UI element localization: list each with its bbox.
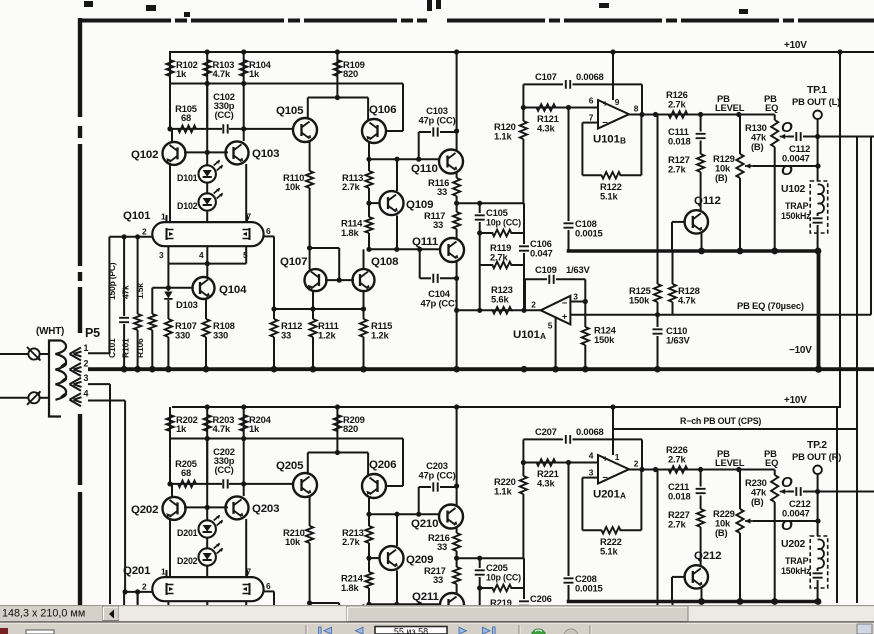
svg-text:5.1k: 5.1k — [600, 191, 618, 202]
svg-text:6: 6 — [266, 581, 271, 591]
svg-text:33: 33 — [433, 219, 443, 230]
svg-text:2.7k: 2.7k — [490, 252, 508, 263]
svg-text:EQ: EQ — [765, 457, 778, 468]
svg-text:1k: 1k — [176, 423, 187, 434]
svg-text:−10V: −10V — [789, 345, 812, 356]
svg-text:5.6k: 5.6k — [491, 294, 509, 305]
svg-text:Q206: Q206 — [369, 459, 396, 471]
svg-text:U202: U202 — [781, 539, 806, 550]
svg-text:0.0047: 0.0047 — [782, 508, 810, 519]
svg-text:2: 2 — [84, 358, 89, 368]
svg-text:4.7k: 4.7k — [213, 68, 231, 79]
svg-text:TP.2: TP.2 — [807, 440, 827, 451]
svg-text:150k: 150k — [629, 295, 650, 306]
svg-text:U201: U201 — [593, 489, 620, 501]
svg-text:820: 820 — [343, 68, 358, 79]
svg-text:6: 6 — [266, 226, 271, 236]
svg-text:D101: D101 — [177, 173, 198, 183]
svg-text:0.0068: 0.0068 — [576, 426, 604, 437]
svg-text:O: O — [781, 119, 793, 136]
svg-text:330: 330 — [213, 330, 228, 341]
svg-text:0.018: 0.018 — [668, 136, 691, 147]
svg-text:0.0047: 0.0047 — [782, 153, 810, 164]
svg-text:2: 2 — [142, 582, 147, 592]
svg-text:7: 7 — [247, 212, 252, 222]
svg-text:33: 33 — [433, 574, 443, 585]
svg-text:150k: 150k — [594, 334, 615, 345]
svg-text:820: 820 — [343, 423, 358, 434]
svg-text:B: B — [620, 136, 626, 146]
svg-text:1.2k: 1.2k — [318, 330, 336, 341]
svg-text:150kHz: 150kHz — [781, 211, 811, 221]
svg-text:U102: U102 — [781, 184, 806, 195]
svg-text:D103: D103 — [176, 299, 198, 310]
svg-text:U101: U101 — [593, 134, 620, 146]
svg-text:0.0068: 0.0068 — [576, 71, 604, 82]
svg-text:(WHT): (WHT) — [36, 326, 64, 337]
svg-text:150kHz: 150kHz — [781, 566, 811, 576]
svg-text:4: 4 — [84, 389, 89, 399]
svg-text:Q202: Q202 — [131, 504, 158, 516]
svg-text:4: 4 — [199, 250, 204, 260]
svg-text:Q205: Q205 — [276, 460, 304, 472]
svg-text:+: + — [603, 99, 608, 109]
svg-text:10p (CC): 10p (CC) — [486, 218, 521, 228]
svg-text:PB EQ (70µsec): PB EQ (70µsec) — [737, 300, 804, 311]
svg-text:R101: R101 — [121, 338, 131, 358]
svg-text:(CC): (CC) — [214, 109, 233, 120]
svg-text:Q110: Q110 — [411, 163, 438, 175]
svg-text:+: + — [562, 311, 568, 322]
svg-text:10p (CC): 10p (CC) — [486, 573, 521, 583]
svg-text:4.3k: 4.3k — [537, 478, 555, 489]
svg-text:2.7k: 2.7k — [668, 519, 686, 530]
svg-text:(B): (B) — [715, 172, 728, 183]
svg-text:+10V: +10V — [784, 395, 807, 406]
svg-text:3: 3 — [159, 250, 164, 260]
svg-text:O: O — [781, 474, 793, 491]
svg-text:5.1k: 5.1k — [600, 546, 618, 557]
svg-text:Q108: Q108 — [371, 256, 399, 268]
svg-text:47p (CC): 47p (CC) — [418, 470, 455, 481]
svg-text:10k: 10k — [285, 536, 301, 547]
svg-text:A: A — [620, 491, 626, 501]
svg-text:2.7k: 2.7k — [342, 536, 360, 547]
svg-text:(CC): (CC) — [214, 464, 233, 475]
svg-text:+: + — [603, 454, 608, 464]
svg-text:P5: P5 — [85, 326, 100, 340]
svg-text:1k: 1k — [249, 423, 260, 434]
svg-text:2: 2 — [142, 227, 147, 237]
svg-text:0.0015: 0.0015 — [575, 228, 603, 239]
svg-text:C207: C207 — [535, 426, 557, 437]
svg-text:C205: C205 — [486, 562, 508, 573]
svg-text:O: O — [781, 517, 793, 534]
svg-text:(B): (B) — [751, 496, 764, 507]
svg-text:0.0015: 0.0015 — [575, 583, 603, 594]
svg-text:PB OUT (L): PB OUT (L) — [792, 96, 840, 107]
svg-text:PB OUT (R): PB OUT (R) — [792, 451, 841, 462]
svg-text:68: 68 — [181, 467, 191, 478]
svg-text:1: 1 — [161, 567, 166, 577]
svg-text:10k: 10k — [285, 181, 301, 192]
svg-text:Q104: Q104 — [219, 284, 247, 296]
svg-text:4.7k: 4.7k — [678, 295, 696, 306]
svg-text:Q111: Q111 — [412, 236, 439, 248]
svg-text:0.018: 0.018 — [668, 491, 691, 502]
svg-text:C105: C105 — [486, 207, 508, 218]
svg-text:Q212: Q212 — [694, 550, 721, 562]
svg-text:9: 9 — [615, 97, 620, 107]
svg-text:2.7k: 2.7k — [668, 454, 686, 465]
svg-text:Q106: Q106 — [369, 104, 396, 116]
svg-text:O: O — [781, 162, 793, 179]
svg-text:TRAP: TRAP — [785, 556, 809, 566]
svg-text:Q105: Q105 — [276, 105, 304, 117]
svg-text:R106: R106 — [135, 338, 145, 358]
svg-text:+10V: +10V — [784, 40, 807, 51]
svg-text:1.1k: 1.1k — [494, 486, 512, 497]
svg-text:1: 1 — [84, 343, 89, 353]
svg-text:6: 6 — [589, 96, 594, 106]
svg-text:1k: 1k — [176, 68, 187, 79]
svg-text:LEVEL: LEVEL — [715, 102, 745, 113]
svg-text:−: − — [562, 297, 568, 308]
svg-text:1k: 1k — [249, 68, 260, 79]
svg-text:TP.1: TP.1 — [807, 85, 827, 96]
svg-text:47p (CC): 47p (CC) — [420, 298, 457, 309]
svg-text:7: 7 — [589, 113, 594, 123]
svg-text:33: 33 — [437, 186, 447, 197]
svg-text:3: 3 — [589, 468, 594, 478]
svg-text:A: A — [540, 331, 546, 341]
svg-text:Q103: Q103 — [252, 148, 279, 160]
svg-text:33: 33 — [437, 541, 447, 552]
svg-text:1: 1 — [615, 452, 620, 462]
svg-text:(B): (B) — [715, 527, 728, 538]
svg-text:−: − — [602, 117, 608, 128]
svg-text:Q201: Q201 — [123, 565, 151, 577]
svg-text:33: 33 — [281, 330, 291, 341]
svg-text:1/63V: 1/63V — [566, 264, 590, 275]
svg-text:Q107: Q107 — [280, 256, 307, 268]
svg-text:D102: D102 — [177, 201, 198, 211]
svg-text:55 из 58: 55 из 58 — [394, 627, 428, 634]
svg-text:3: 3 — [84, 373, 89, 383]
svg-text:2: 2 — [634, 459, 639, 469]
svg-text:4: 4 — [589, 451, 594, 461]
svg-text:2.7k: 2.7k — [342, 181, 360, 192]
svg-text:4.3k: 4.3k — [537, 123, 555, 134]
svg-text:EQ: EQ — [765, 102, 778, 113]
svg-text:−: − — [602, 472, 608, 483]
svg-text:Q112: Q112 — [694, 195, 721, 207]
svg-text:Q211: Q211 — [412, 591, 439, 603]
svg-text:5: 5 — [548, 321, 553, 331]
svg-text:47p (CC): 47p (CC) — [418, 115, 455, 126]
svg-text:1/63V: 1/63V — [666, 335, 690, 346]
svg-text:47k: 47k — [121, 285, 131, 299]
svg-text:R−ch PB OUT (CPS): R−ch PB OUT (CPS) — [680, 416, 761, 426]
svg-text:D201: D201 — [177, 528, 198, 538]
svg-text:2.7k: 2.7k — [668, 99, 686, 110]
svg-text:150p (PC): 150p (PC) — [107, 262, 117, 300]
svg-text:TRAP: TRAP — [785, 201, 809, 211]
svg-text:Q210: Q210 — [411, 518, 438, 530]
svg-text:(B): (B) — [751, 141, 764, 152]
svg-text:2: 2 — [531, 300, 536, 310]
svg-text:1.2k: 1.2k — [371, 330, 389, 341]
svg-text:C101: C101 — [107, 338, 117, 358]
svg-text:330: 330 — [175, 330, 190, 341]
svg-text:Q101: Q101 — [123, 210, 151, 222]
svg-text:68: 68 — [181, 112, 191, 123]
svg-text:Q102: Q102 — [131, 149, 158, 161]
svg-text:C107: C107 — [535, 71, 557, 82]
svg-text:D202: D202 — [177, 556, 198, 566]
svg-text:Q203: Q203 — [252, 503, 279, 515]
svg-text:1.8k: 1.8k — [341, 227, 359, 238]
svg-text:1.1k: 1.1k — [494, 131, 512, 142]
svg-text:4.7k: 4.7k — [213, 423, 231, 434]
svg-text:LEVEL: LEVEL — [715, 457, 745, 468]
svg-text:U101: U101 — [513, 329, 540, 341]
svg-text:7: 7 — [247, 567, 252, 577]
svg-text:1: 1 — [161, 212, 166, 222]
svg-text:8: 8 — [634, 104, 639, 114]
svg-text:C109: C109 — [535, 264, 557, 275]
svg-text:1.5k: 1.5k — [135, 283, 145, 299]
svg-text:1.8k: 1.8k — [341, 582, 359, 593]
svg-text:148,3 x 210,0 мм: 148,3 x 210,0 мм — [2, 608, 85, 620]
svg-text:2.7k: 2.7k — [668, 164, 686, 175]
svg-text:0.047: 0.047 — [530, 248, 553, 259]
svg-text:3: 3 — [573, 292, 578, 302]
